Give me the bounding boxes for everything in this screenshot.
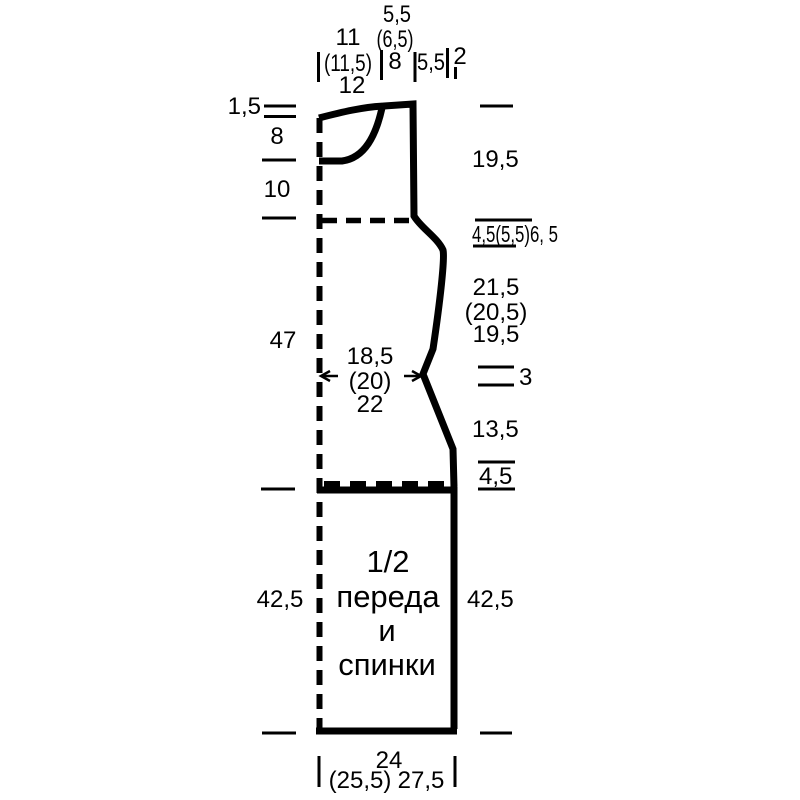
armhole-offset-label: 2 (453, 43, 466, 70)
waist-to-hip-label: 13,5 (472, 416, 519, 443)
piece-label: 1/2 переда и спинки (336, 544, 440, 682)
waist-width-size1: 18,5 (347, 343, 394, 370)
shoulder-slope-size1: 5,5 (383, 1, 411, 28)
armhole-to-hip-label: 47 (270, 327, 297, 354)
hip-bindoff-label: 4,5 (479, 463, 512, 490)
back-neck-depth-label: 1,5 (228, 93, 261, 120)
front-neck-depth-label: 8 (270, 123, 283, 150)
piece-label-line3: и (378, 613, 395, 648)
piece-label-line1: 1/2 (366, 544, 409, 579)
waist-labels: 18,5 (20) 22 (347, 343, 394, 418)
piece-label-line2: переда (336, 579, 440, 614)
neck-to-armhole-label: 10 (264, 176, 291, 203)
waist-marker-label: 3 (519, 364, 532, 391)
pattern-schematic: 11 (11,5) 12 5,5 (6,5) 8 5,5 2 1,5 8 10 … (0, 0, 800, 800)
waist-width-size3: 22 (357, 391, 384, 418)
hem-width-alt1-label: (25,5) (329, 767, 392, 794)
top-labels: 11 (11,5) 12 5,5 (6,5) 8 5,5 2 (324, 1, 467, 99)
hem-width-alt2-label: 27,5 (398, 767, 445, 794)
shoulder-slope-size3: 8 (388, 48, 401, 75)
bottom-labels: 24 (25,5) 27,5 (329, 747, 445, 794)
pattern-schematic-page: 11 (11,5) 12 5,5 (6,5) 8 5,5 2 1,5 8 10 … (0, 0, 800, 800)
hip-to-hem-left-label: 42,5 (257, 586, 304, 613)
right-labels: 19,5 4,5(5,5)6, 5 21,5 (20,5) 19,5 3 13,… (465, 146, 558, 613)
left-labels: 1,5 8 10 47 42,5 (228, 93, 304, 613)
armhole-to-waist-size3: 19,5 (473, 321, 520, 348)
underarm-bindoff-label: 4,5(5,5)6, 5 (472, 221, 558, 247)
neck-width-size3: 12 (339, 72, 366, 99)
shoulder-width-label: 5,5 (417, 49, 445, 76)
armhole-to-waist-size1: 21,5 (473, 274, 520, 301)
hip-to-hem-right-label: 42,5 (467, 586, 514, 613)
armhole-depth-label: 19,5 (472, 146, 519, 173)
neck-width-size1: 11 (336, 24, 361, 51)
piece-label-line4: спинки (338, 647, 436, 682)
